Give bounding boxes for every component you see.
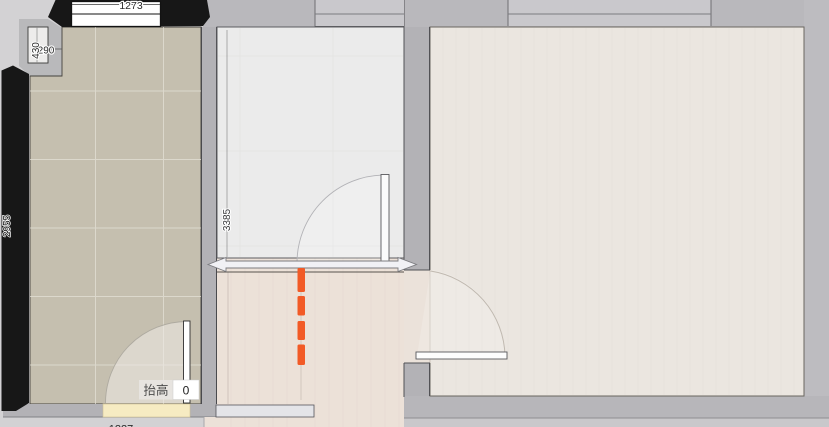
svg-text:430: 430: [31, 42, 42, 59]
svg-text:2955: 2955: [2, 214, 13, 237]
svg-text:1227: 1227: [109, 424, 133, 427]
svg-text:3385: 3385: [222, 208, 233, 231]
svg-text:1273: 1273: [119, 0, 143, 12]
svg-text:抬高: 抬高: [143, 383, 168, 398]
svg-text:0: 0: [183, 384, 190, 398]
